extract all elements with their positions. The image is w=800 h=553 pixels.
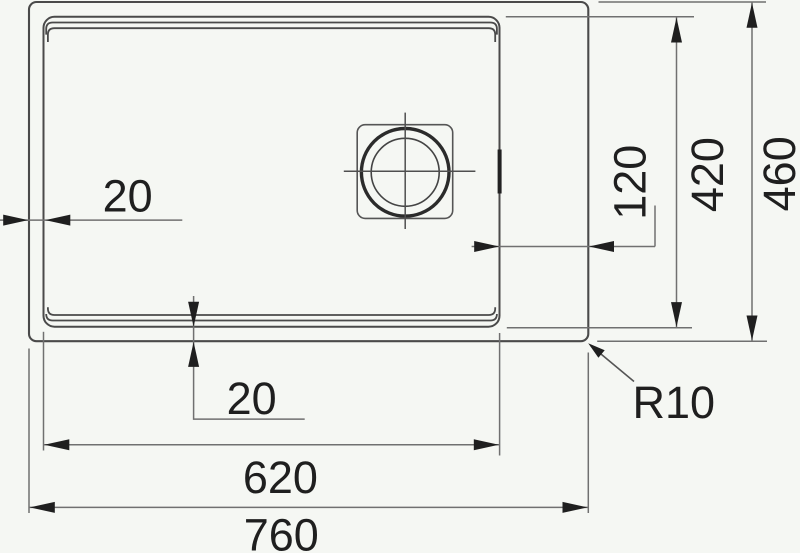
svg-text:620: 620 <box>243 452 318 503</box>
svg-text:R10: R10 <box>633 377 716 428</box>
svg-text:760: 760 <box>244 510 319 553</box>
svg-text:120: 120 <box>605 145 656 220</box>
svg-text:420: 420 <box>682 137 733 212</box>
svg-text:20: 20 <box>103 170 153 221</box>
svg-text:20: 20 <box>227 373 277 424</box>
svg-text:460: 460 <box>754 136 800 211</box>
